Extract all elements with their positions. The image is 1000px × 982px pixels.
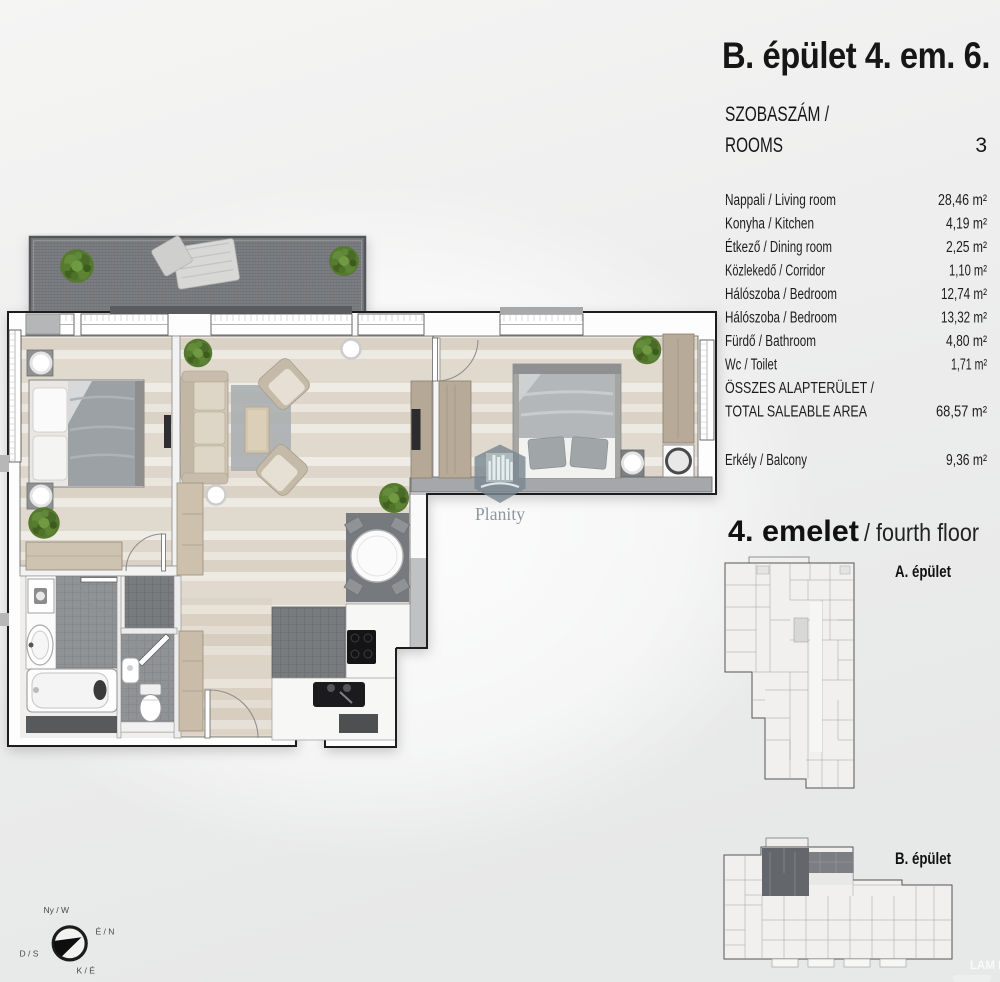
svg-text:Planity: Planity <box>475 504 525 524</box>
svg-text:Konyha / Kitchen: Konyha / Kitchen <box>725 216 814 233</box>
svg-text:3: 3 <box>975 134 987 157</box>
svg-text:SZOBASZÁM /: SZOBASZÁM / <box>725 103 829 126</box>
svg-text:Ny / W: Ny / W <box>44 905 70 915</box>
svg-text:Fürdő / Bathroom: Fürdő / Bathroom <box>725 333 816 350</box>
svg-text:13,32 m²: 13,32 m² <box>941 310 987 327</box>
svg-text:4,80 m²: 4,80 m² <box>946 333 987 350</box>
svg-text:A. épület: A. épület <box>895 562 951 581</box>
svg-text:ROOMS: ROOMS <box>725 134 783 157</box>
svg-text:Erkély / Balcony: Erkély / Balcony <box>725 452 807 469</box>
svg-text:D / S: D / S <box>20 949 39 959</box>
svg-text:É / N: É / N <box>96 927 115 937</box>
svg-text:1,71 m²: 1,71 m² <box>951 357 987 374</box>
svg-text:ÖSSZES ALAPTERÜLET /: ÖSSZES ALAPTERÜLET / <box>725 379 875 397</box>
svg-text:Wc / Toilet: Wc / Toilet <box>725 357 778 374</box>
svg-text:Étkező / Dining room: Étkező / Dining room <box>725 239 832 256</box>
svg-text:2,25 m²: 2,25 m² <box>946 239 987 256</box>
svg-text:K / É: K / É <box>77 966 96 976</box>
svg-text:/ fourth floor: / fourth floor <box>864 519 979 547</box>
svg-text:TOTAL SALEABLE AREA: TOTAL SALEABLE AREA <box>725 404 868 421</box>
svg-text:1,10 m²: 1,10 m² <box>949 263 987 280</box>
svg-text:LAM R: LAM R <box>970 960 1000 972</box>
svg-text:B. épület 4. em. 6.: B. épület 4. em. 6. <box>722 35 990 76</box>
svg-text:B. épület: B. épület <box>895 849 951 868</box>
svg-text:68,57 m²: 68,57 m² <box>936 404 987 421</box>
svg-text:4,19 m²: 4,19 m² <box>946 216 987 233</box>
svg-text:28,46 m²: 28,46 m² <box>938 192 987 209</box>
svg-text:Közlekedő / Corridor: Közlekedő / Corridor <box>725 263 825 280</box>
svg-text:4. emelet: 4. emelet <box>728 515 859 548</box>
svg-text:Nappali / Living room: Nappali / Living room <box>725 192 836 209</box>
svg-text:12,74 m²: 12,74 m² <box>941 286 987 303</box>
svg-text:Hálószoba / Bedroom: Hálószoba / Bedroom <box>725 310 837 327</box>
svg-text:9,36 m²: 9,36 m² <box>946 452 987 469</box>
svg-text:Hálószoba / Bedroom: Hálószoba / Bedroom <box>725 286 837 303</box>
